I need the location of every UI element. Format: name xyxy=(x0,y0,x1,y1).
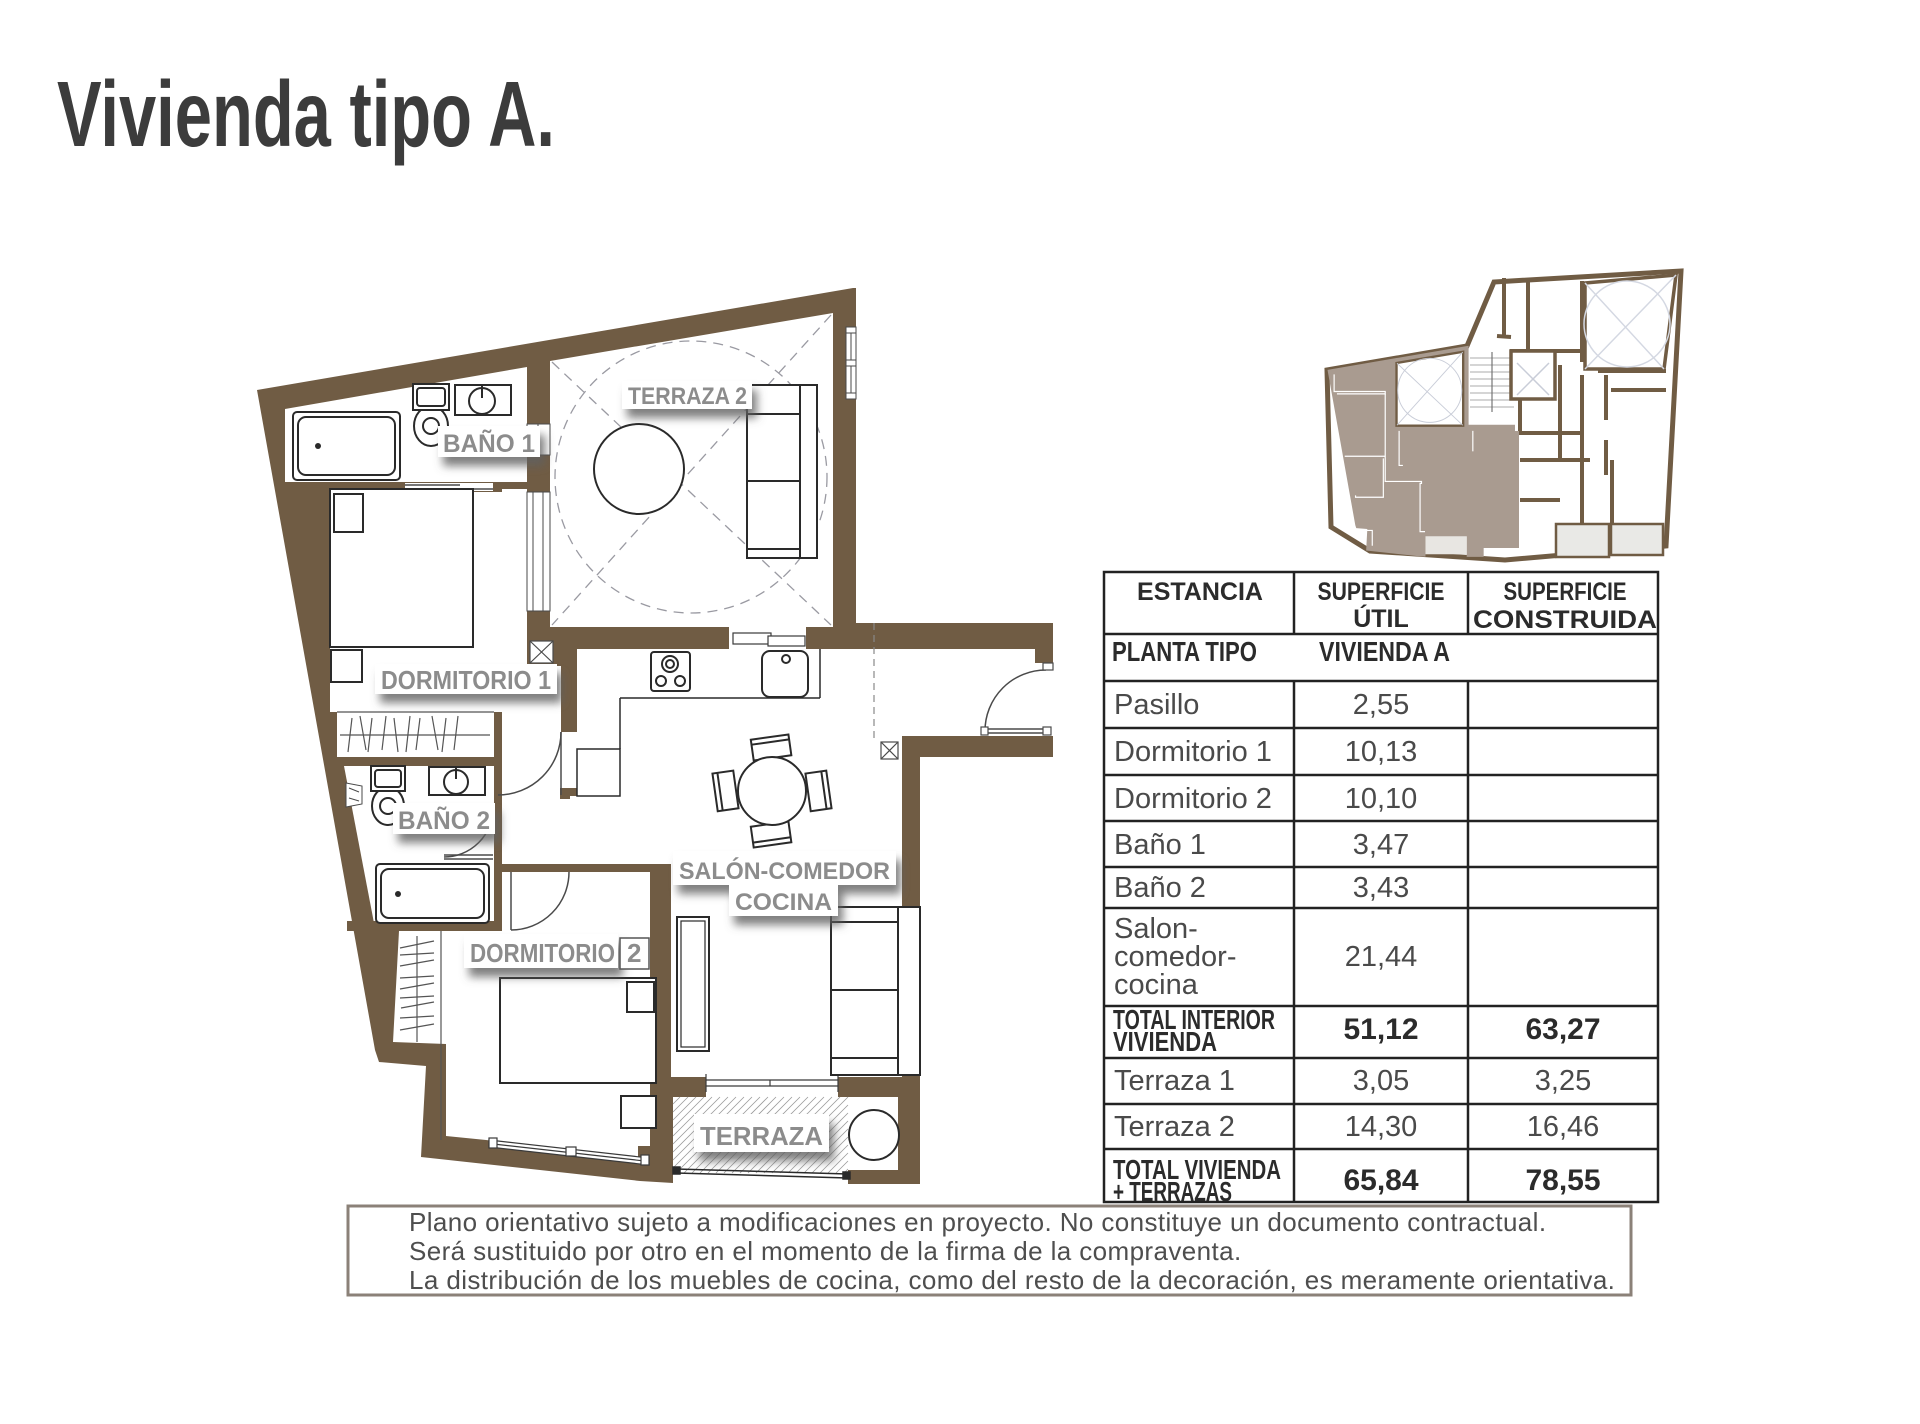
svg-text:Dormitorio 2: Dormitorio 2 xyxy=(1114,783,1272,815)
svg-text:Baño 1: Baño 1 xyxy=(1114,829,1206,861)
svg-text:TERRAZA: TERRAZA xyxy=(700,1121,823,1151)
svg-text:Plano orientativo sujeto a mod: Plano orientativo sujeto a modificacione… xyxy=(409,1207,1546,1237)
svg-text:ÚTIL: ÚTIL xyxy=(1353,603,1409,633)
svg-text:3,05: 3,05 xyxy=(1353,1065,1409,1097)
svg-text:65,84: 65,84 xyxy=(1343,1164,1418,1197)
svg-text:SALÓN-COMEDOR: SALÓN-COMEDOR xyxy=(679,857,890,885)
svg-text:+ TERRAZAS: + TERRAZAS xyxy=(1113,1176,1232,1207)
svg-text:78,55: 78,55 xyxy=(1525,1164,1600,1197)
svg-text:10,10: 10,10 xyxy=(1345,783,1418,815)
svg-text:Terraza 1: Terraza 1 xyxy=(1114,1065,1235,1097)
svg-text:14,30: 14,30 xyxy=(1345,1111,1418,1143)
svg-text:ESTANCIA: ESTANCIA xyxy=(1137,578,1263,606)
svg-text:COCINA: COCINA xyxy=(735,889,832,916)
svg-text:Será sustituido por otro en el: Será sustituido por otro en el momento d… xyxy=(409,1236,1242,1266)
svg-text:BAÑO 2: BAÑO 2 xyxy=(398,805,490,835)
svg-text:Baño 2: Baño 2 xyxy=(1114,872,1206,904)
svg-text:3,47: 3,47 xyxy=(1353,829,1409,861)
svg-text:SUPERFICIE: SUPERFICIE xyxy=(1318,578,1445,606)
svg-text:2,55: 2,55 xyxy=(1353,689,1409,721)
svg-text:16,46: 16,46 xyxy=(1527,1111,1600,1143)
svg-text:DORMITORIO: DORMITORIO xyxy=(470,938,615,968)
svg-text:PLANTA TIPO: PLANTA TIPO xyxy=(1112,636,1257,667)
svg-text:BAÑO 1: BAÑO 1 xyxy=(443,428,535,458)
svg-text:TERRAZA 2: TERRAZA 2 xyxy=(628,383,747,410)
svg-text:La distribución de los muebles: La distribución de los muebles de cocina… xyxy=(409,1265,1615,1295)
svg-text:51,12: 51,12 xyxy=(1343,1013,1418,1046)
svg-text:Terraza 2: Terraza 2 xyxy=(1114,1111,1235,1143)
svg-text:63,27: 63,27 xyxy=(1525,1013,1600,1046)
svg-text:3,25: 3,25 xyxy=(1535,1065,1591,1097)
svg-text:VIVIENDA: VIVIENDA xyxy=(1113,1026,1217,1057)
svg-text:Pasillo: Pasillo xyxy=(1114,689,1199,721)
svg-text:DORMITORIO 1: DORMITORIO 1 xyxy=(381,665,551,695)
svg-text:3,43: 3,43 xyxy=(1353,872,1409,904)
svg-text:Vivienda tipo A.: Vivienda tipo A. xyxy=(57,62,555,166)
svg-text:Dormitorio 1: Dormitorio 1 xyxy=(1114,736,1272,768)
svg-text:SUPERFICIE: SUPERFICIE xyxy=(1504,578,1627,606)
svg-text:10,13: 10,13 xyxy=(1345,736,1418,768)
svg-text:CONSTRUIDA: CONSTRUIDA xyxy=(1473,606,1657,634)
svg-text:21,44: 21,44 xyxy=(1345,941,1418,973)
svg-text:2: 2 xyxy=(627,938,641,968)
svg-text:cocina: cocina xyxy=(1114,969,1199,1001)
svg-text:VIVIENDA A: VIVIENDA A xyxy=(1319,636,1450,667)
